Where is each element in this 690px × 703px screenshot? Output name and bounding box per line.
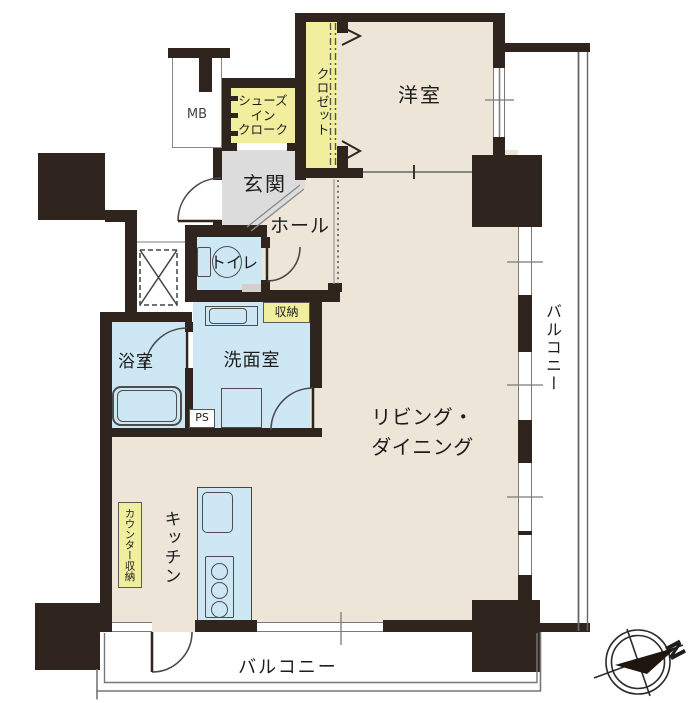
- kitchen-sink: [202, 492, 233, 533]
- wall: [383, 620, 473, 632]
- wall-block: [38, 153, 105, 220]
- meter-box: [172, 57, 222, 148]
- kitchen-label: キッチン: [158, 503, 184, 593]
- wall: [518, 295, 532, 352]
- storage-label: 収納: [263, 302, 310, 323]
- wall: [310, 290, 322, 388]
- balcony-door-arc: [152, 632, 192, 672]
- bathtub-inner: [117, 390, 177, 422]
- wall: [222, 78, 305, 88]
- washroom-label: 洗面室: [202, 350, 302, 372]
- meter-box-label: MB: [172, 106, 222, 124]
- counter-storage-label: カウンター収納: [118, 502, 142, 588]
- floor-plan: N 洋室 クロゼット シューズ イン クローク MB 玄関 ホール トイレ 収納…: [0, 0, 690, 703]
- wall: [518, 575, 532, 620]
- balcony-bottom-label: バルコニー: [233, 655, 343, 681]
- pipe-space-label: PS: [195, 411, 209, 425]
- sliding-window: [257, 622, 383, 632]
- wall-tag: [242, 284, 261, 292]
- wall: [295, 13, 306, 180]
- wall: [185, 322, 193, 332]
- wall: [185, 225, 267, 237]
- wall: [287, 143, 305, 151]
- entrance-label: 玄関: [230, 172, 300, 196]
- washing-machine: [209, 308, 247, 324]
- wall: [337, 146, 348, 170]
- wall: [125, 213, 137, 322]
- wall-block: [472, 155, 542, 227]
- window: [518, 227, 532, 295]
- window: [518, 352, 532, 420]
- stove-burner: [211, 601, 228, 618]
- western-room-label: 洋室: [385, 82, 455, 108]
- wall-block: [35, 603, 100, 670]
- bathroom-label: 浴室: [106, 351, 166, 373]
- pipe-space-box: PS: [189, 409, 215, 428]
- compass: N: [594, 629, 690, 696]
- stove-burner: [211, 563, 228, 580]
- window: [518, 535, 532, 575]
- entrance-door-arc: [178, 178, 221, 221]
- wall: [261, 237, 270, 248]
- wall: [213, 148, 222, 180]
- wall: [337, 20, 348, 33]
- wall: [222, 88, 231, 150]
- wall: [295, 13, 505, 22]
- wall: [199, 48, 212, 92]
- window: [112, 622, 152, 632]
- balcony-wall-bar: [538, 623, 590, 632]
- compass-north-label: N: [659, 637, 690, 665]
- wall: [518, 420, 532, 463]
- shaft-x: [140, 250, 177, 305]
- balcony-wall-bar: [501, 43, 590, 52]
- wall: [100, 312, 192, 322]
- compass-needle: [615, 647, 677, 674]
- wall: [328, 283, 342, 292]
- wall: [493, 13, 505, 68]
- vanity-unit: [221, 388, 262, 428]
- shaft-box: [140, 250, 177, 305]
- wall: [100, 428, 322, 437]
- wall: [195, 620, 257, 632]
- closet-label: クロゼット: [308, 58, 334, 146]
- wall: [306, 168, 363, 178]
- stove-burner: [211, 582, 228, 599]
- hall-label: ホール: [262, 214, 338, 238]
- living-dining-label: リビング・ ダイニング: [350, 403, 495, 461]
- window: [518, 463, 532, 531]
- wall: [222, 143, 237, 151]
- shoes-in-cloak-label: シューズ イン クローク: [231, 90, 295, 142]
- balcony-right-label: バルコニー: [540, 293, 564, 403]
- window: [493, 68, 505, 137]
- toilet-label: トイレ: [203, 253, 265, 273]
